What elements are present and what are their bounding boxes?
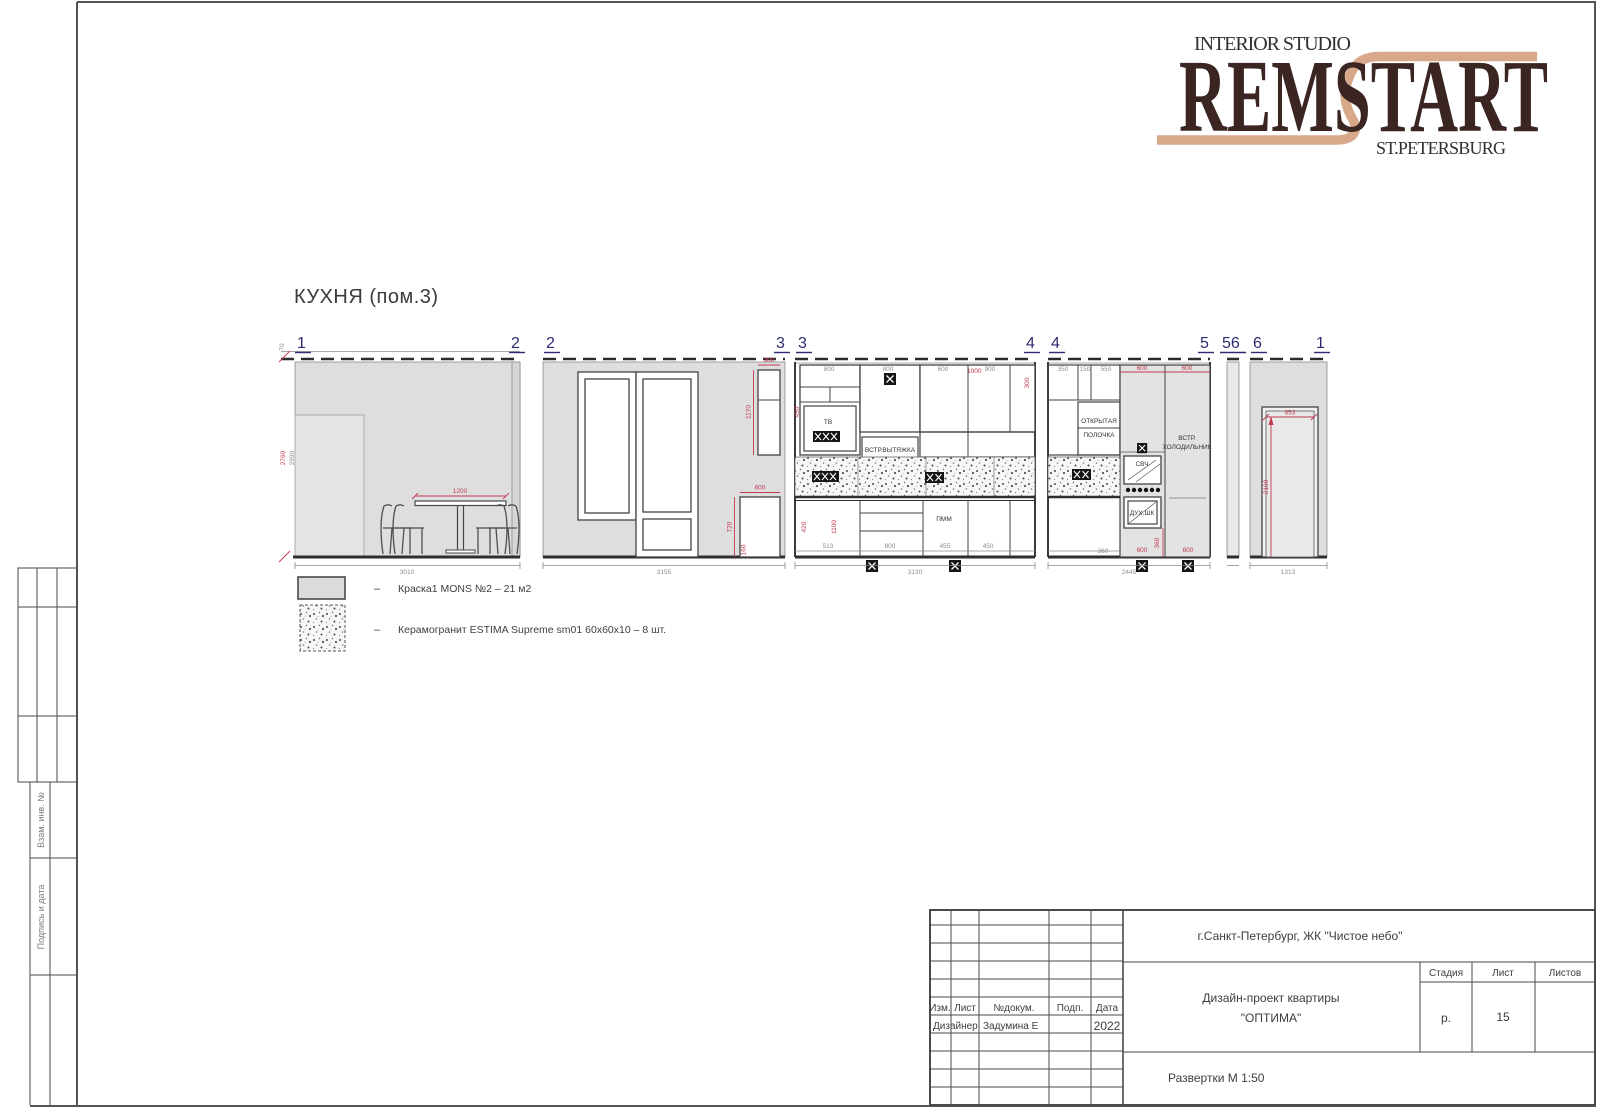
tv-label: ТВ bbox=[824, 419, 832, 426]
dim-e4-b2: 600 bbox=[1137, 547, 1148, 554]
dim-section-1170: 1170 bbox=[746, 405, 753, 419]
dim-e3-300: 300 bbox=[1024, 377, 1031, 388]
dim-e4-v360: 360 bbox=[1154, 537, 1161, 548]
backsplash-outlet-3 bbox=[1072, 469, 1091, 480]
tb-h-list: Лист bbox=[954, 1003, 976, 1014]
tb-year: 2022 bbox=[1094, 1019, 1121, 1033]
floor-outlet-1 bbox=[866, 560, 878, 572]
marker-4b: 4 bbox=[1051, 335, 1060, 352]
drawing-title: КУХНЯ (пом.3) bbox=[294, 286, 439, 308]
tb-h-doc: №докум. bbox=[993, 1003, 1034, 1014]
dim-section-720: 720 bbox=[727, 521, 734, 532]
tb-view-title: Развертки М 1:50 bbox=[1168, 1071, 1265, 1085]
dim-e3-t2: 800 bbox=[883, 366, 894, 373]
dim-section-600: 600 bbox=[755, 485, 766, 492]
marker-6: 6 bbox=[1253, 335, 1262, 352]
microwave-outlet bbox=[1137, 443, 1147, 453]
tb-h-izm: Изм. bbox=[929, 1003, 950, 1014]
door-opening bbox=[1262, 407, 1318, 557]
tall-units: ВСТР. ХОЛОДИЛЬНИК СВЧ ДУХ.ШК 360 bbox=[1120, 365, 1212, 557]
fridge-label-1: ВСТР. bbox=[1178, 435, 1196, 442]
dim-e3-l2: 420 bbox=[801, 521, 808, 532]
side-label-podpis: Подпись и дата bbox=[36, 885, 46, 950]
marker-56: 56 bbox=[1222, 335, 1240, 352]
legend-label-paint: Краска1 MONS №2 – 21 м2 bbox=[398, 583, 531, 595]
marker-3b: 3 bbox=[798, 335, 807, 352]
floor-outlet-3 bbox=[1136, 560, 1148, 572]
upper-cabinets-4: ОТКРЫТАЯ ПОЛОЧКА bbox=[1048, 365, 1120, 455]
logo-city: ST.PETERSBURG bbox=[1376, 138, 1508, 158]
floor-outlet-2 bbox=[949, 560, 961, 572]
title-block: г.Санкт-Петербург, ЖК "Чистое небо" Диза… bbox=[929, 910, 1595, 1105]
dim-e3-t1: 800 bbox=[824, 366, 835, 373]
legend: – Краска1 MONS №2 – 21 м2 – Керамогранит… bbox=[298, 577, 666, 651]
dim-e3-1000: 1000 bbox=[967, 368, 982, 375]
tb-designer-name: Задумина Е bbox=[983, 1021, 1039, 1032]
microwave-label: СВЧ bbox=[1135, 461, 1148, 468]
dim-wall1-width: 3010 bbox=[400, 569, 415, 576]
dim-e4-bg: 360 bbox=[1098, 548, 1109, 555]
dim-e4-b3: 600 bbox=[1183, 547, 1194, 554]
dim-e3-t4: 900 bbox=[985, 366, 996, 373]
legend-dash-1: – bbox=[374, 583, 381, 595]
dim-wall2-width: 3155 bbox=[657, 569, 672, 576]
dim-e3-t3: 600 bbox=[938, 366, 949, 373]
marker-2b: 2 bbox=[546, 335, 555, 352]
fridge-label-2: ХОЛОДИЛЬНИК bbox=[1162, 444, 1211, 451]
dim-door-width: 853 bbox=[1285, 410, 1296, 417]
dim-wall6-width: 1313 bbox=[1281, 569, 1296, 576]
drawing-sheet: Взам. инв. № Подпись и дата INTERIOR STU… bbox=[0, 0, 1600, 1108]
tv-outlet-strip bbox=[813, 431, 840, 442]
legend-dash-2: – bbox=[374, 624, 381, 636]
tb-h-sheets: Листов bbox=[1549, 968, 1582, 979]
legend-swatch-paint bbox=[298, 577, 345, 599]
logo-name: REMSTART bbox=[1179, 39, 1548, 154]
floor-outlet-4 bbox=[1182, 560, 1194, 572]
marker-1b: 1 bbox=[1316, 335, 1325, 352]
dim-e3-b2: 800 bbox=[885, 543, 896, 550]
oven-label: ДУХ.ШК bbox=[1130, 510, 1155, 517]
dim-e3-l1: 450 bbox=[794, 406, 801, 417]
dim-wall4-width: 2445 bbox=[1122, 569, 1137, 576]
dim-section-300: 300 bbox=[764, 357, 775, 364]
outlet-top bbox=[884, 373, 896, 385]
tb-h-sign: Подп. bbox=[1057, 1003, 1084, 1014]
dim-ceiling-gap: 70 bbox=[279, 343, 286, 351]
dim-e3-b4: 450 bbox=[983, 543, 994, 550]
legend-swatch-tile bbox=[300, 605, 345, 651]
backsplash-outlet-2 bbox=[925, 472, 944, 483]
dim-e4-t2: 150 bbox=[1080, 366, 1091, 373]
tb-location: г.Санкт-Петербург, ЖК "Чистое небо" bbox=[1198, 929, 1403, 943]
dim-e3-b1: 513 bbox=[823, 543, 834, 550]
wall-5 bbox=[1227, 362, 1239, 557]
dim-section-160: 160 bbox=[741, 544, 748, 555]
logo: INTERIOR STUDIO REMSTART ST.PETERSBURG bbox=[1157, 33, 1548, 158]
upper-cabinets-3: ТВ ВСТР.ВЫТЯЖКА bbox=[800, 365, 1035, 461]
elevation-1: 1200 2760 2690 70 3010 1 2 bbox=[279, 335, 525, 576]
legend-label-tile: Керамогранит ESTIMA Supreme sm01 60х60х1… bbox=[398, 624, 666, 636]
dim-table-width: 1200 bbox=[453, 488, 468, 495]
dim-wall-height-red: 2760 bbox=[280, 450, 287, 465]
marker-3a: 3 bbox=[776, 335, 785, 352]
dim-e4-t5: 600 bbox=[1182, 365, 1193, 372]
dim-wall3-width: 3130 bbox=[908, 569, 923, 576]
dim-e3-l3: 1100 bbox=[831, 520, 838, 534]
marker-4a: 4 bbox=[1026, 335, 1035, 352]
dim-e4-t3: 550 bbox=[1101, 366, 1112, 373]
dim-door-height: 2100 bbox=[1263, 479, 1270, 494]
elevation-6: 853 2100 1313 6 1 bbox=[1250, 335, 1330, 576]
dim-e3-b3: 455 bbox=[940, 543, 951, 550]
marker-2a: 2 bbox=[511, 335, 520, 352]
tb-h-sheet: Лист bbox=[1492, 968, 1514, 979]
tb-h-date: Дата bbox=[1096, 1003, 1119, 1014]
tb-stage-value: р. bbox=[1441, 1011, 1451, 1025]
backsplash-outlet-1 bbox=[812, 471, 839, 482]
marker-1a: 1 bbox=[297, 335, 306, 352]
side-stamp: Взам. инв. № Подпись и дата bbox=[18, 568, 77, 1105]
dim-e4-t1: 350 bbox=[1058, 366, 1069, 373]
tb-sheet-number: 15 bbox=[1496, 1010, 1510, 1024]
tb-doc-line2: "ОПТИМА" bbox=[1241, 1011, 1301, 1025]
tb-role: Дизайнер bbox=[933, 1021, 978, 1032]
dishwasher-label: ПММ bbox=[936, 516, 952, 523]
dim-e4-t4: 600 bbox=[1137, 365, 1148, 372]
tb-h-stage: Стадия bbox=[1429, 968, 1463, 979]
tb-doc-line1: Дизайн-проект квартиры bbox=[1202, 991, 1339, 1005]
side-label-vzam: Взам. инв. № bbox=[36, 792, 46, 848]
dim-wall-height-gray: 2690 bbox=[289, 450, 296, 465]
elevation-4: ОТКРЫТАЯ ПОЛОЧКА 350 150 550 ВСТР. ХОЛОД… bbox=[1048, 335, 1214, 576]
shelf-label-2: ПОЛОЧКА bbox=[1083, 432, 1115, 439]
shelf-label-1: ОТКРЫТАЯ bbox=[1081, 418, 1117, 425]
marker-5: 5 bbox=[1200, 335, 1209, 352]
elevation-2: 300 1170 600 720 160 3155 2 3 bbox=[543, 335, 790, 576]
elevation-5: 56 bbox=[1220, 335, 1246, 566]
elevation-3: ТВ ВСТР.ВЫТЯЖКА 800 800 600 900 1000 300… bbox=[794, 335, 1040, 576]
hood-label: ВСТР.ВЫТЯЖКА bbox=[865, 447, 916, 454]
